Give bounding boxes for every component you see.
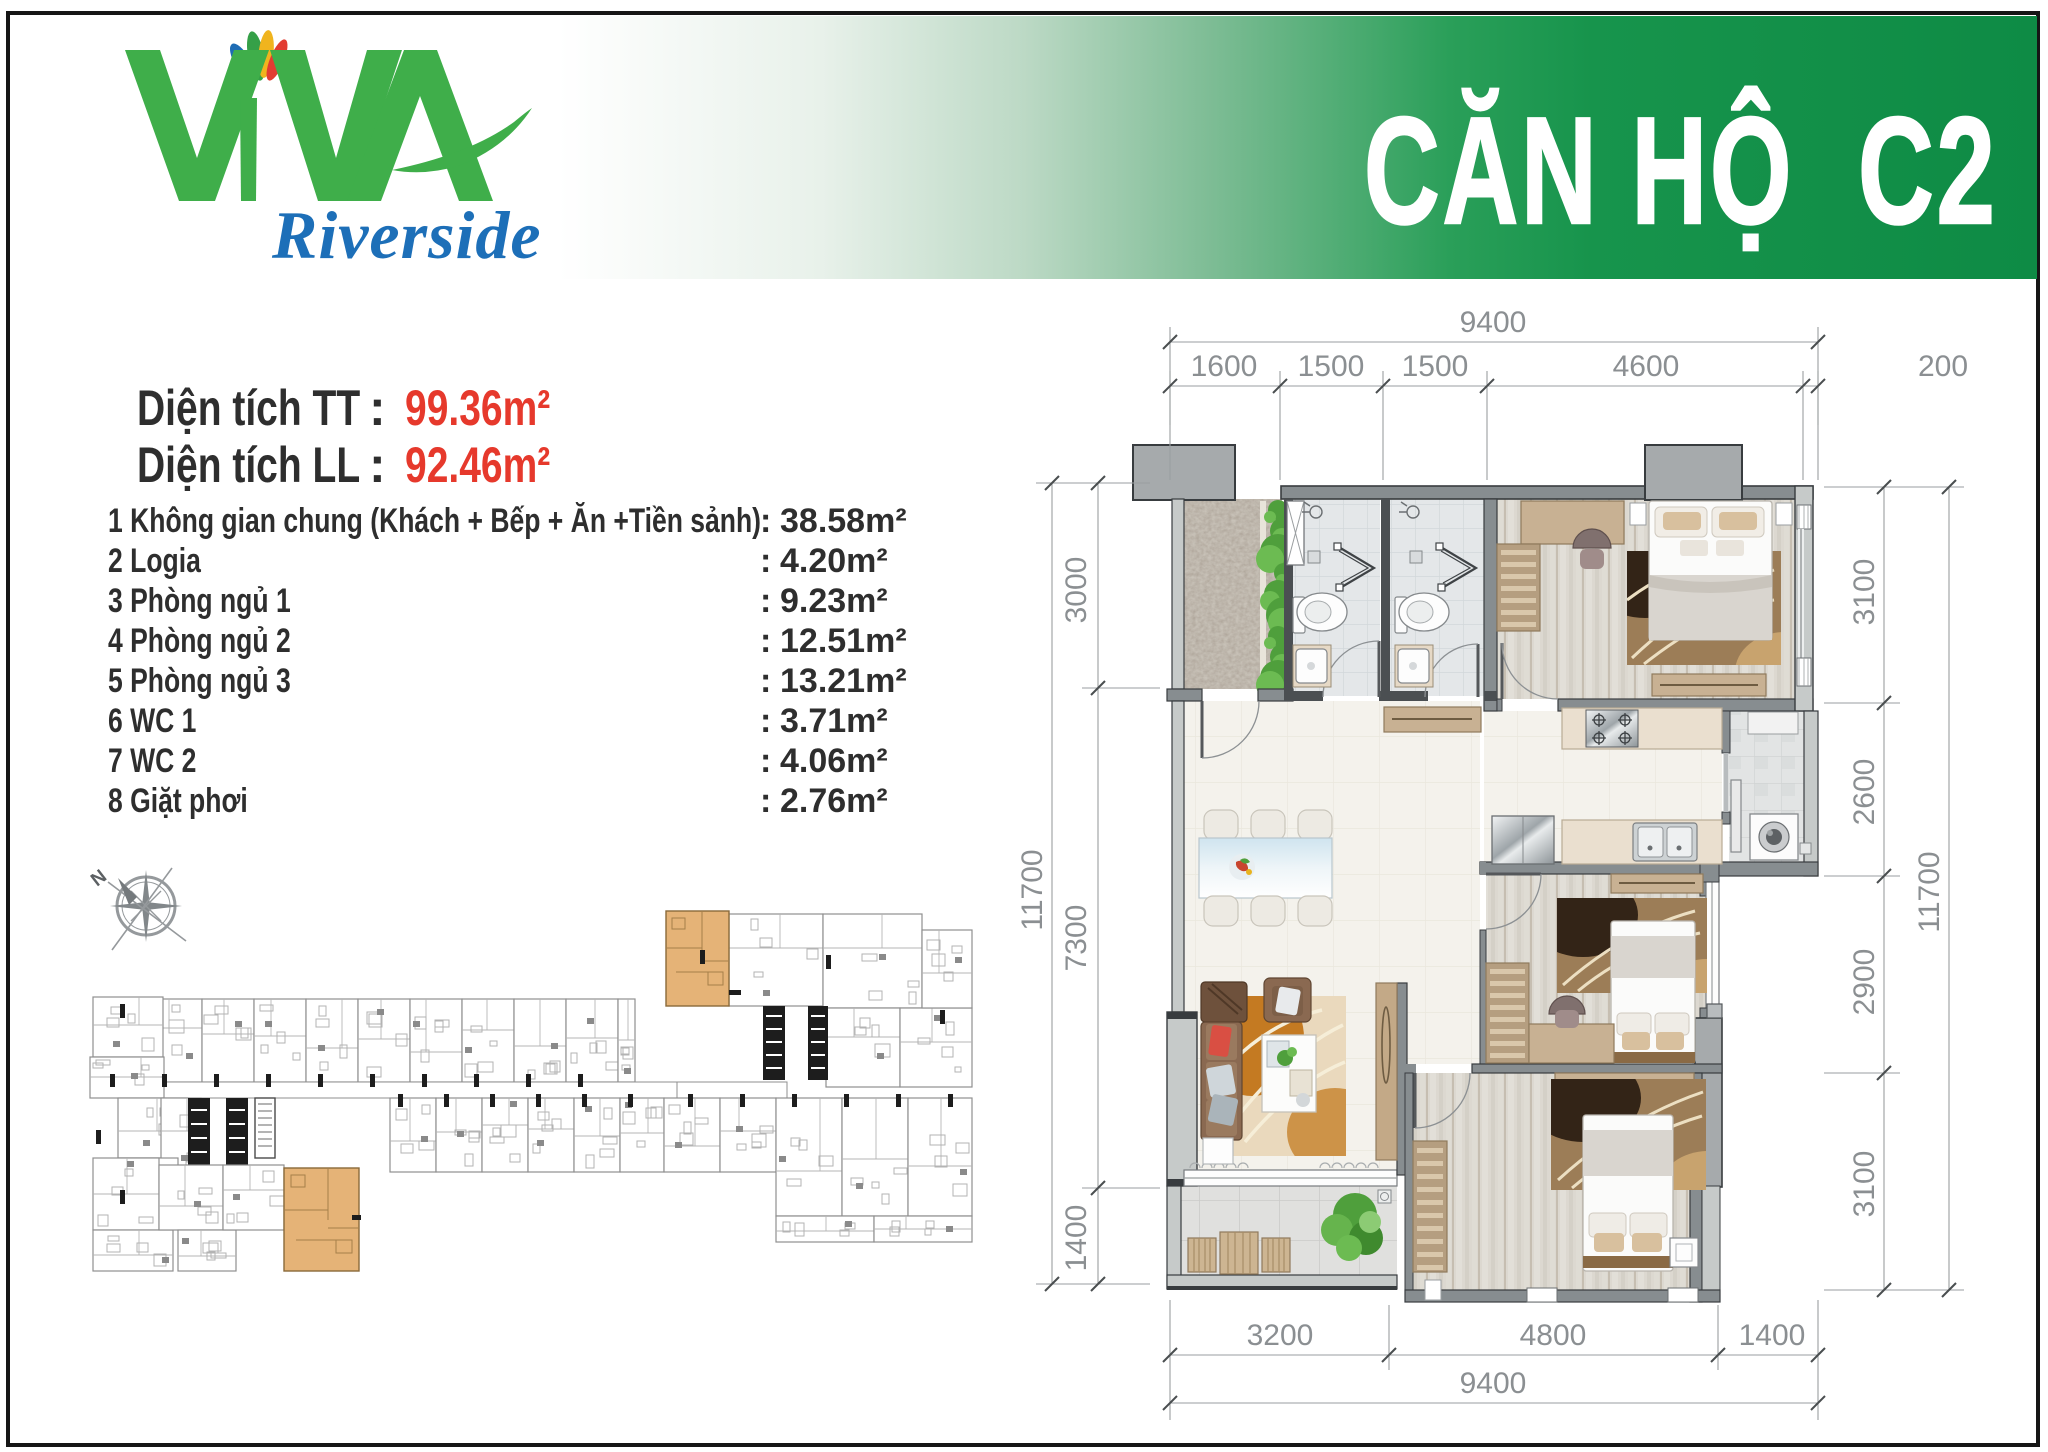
svg-text:9400: 9400 (1460, 306, 1527, 339)
svg-text:N: N (87, 866, 111, 891)
svg-text:1500: 1500 (1402, 350, 1469, 383)
svg-text:1500: 1500 (1298, 350, 1365, 383)
svg-text:3000: 3000 (1060, 557, 1093, 624)
svg-text:1600: 1600 (1191, 350, 1258, 383)
svg-text:4600: 4600 (1613, 350, 1680, 383)
svg-text:1400: 1400 (1739, 1319, 1806, 1352)
svg-text:4800: 4800 (1520, 1319, 1587, 1352)
svg-text:2600: 2600 (1848, 759, 1881, 826)
svg-text:1400: 1400 (1060, 1205, 1093, 1272)
svg-text:2900: 2900 (1848, 949, 1881, 1016)
svg-text:3200: 3200 (1247, 1319, 1314, 1352)
svg-text:9400: 9400 (1460, 1367, 1527, 1400)
svg-text:7300: 7300 (1060, 905, 1093, 972)
svg-text:3100: 3100 (1848, 559, 1881, 626)
svg-text:11700: 11700 (1913, 851, 1946, 932)
svg-text:11700: 11700 (1016, 849, 1049, 930)
svg-text:3100: 3100 (1848, 1151, 1881, 1218)
svg-text:200: 200 (1918, 350, 1968, 383)
